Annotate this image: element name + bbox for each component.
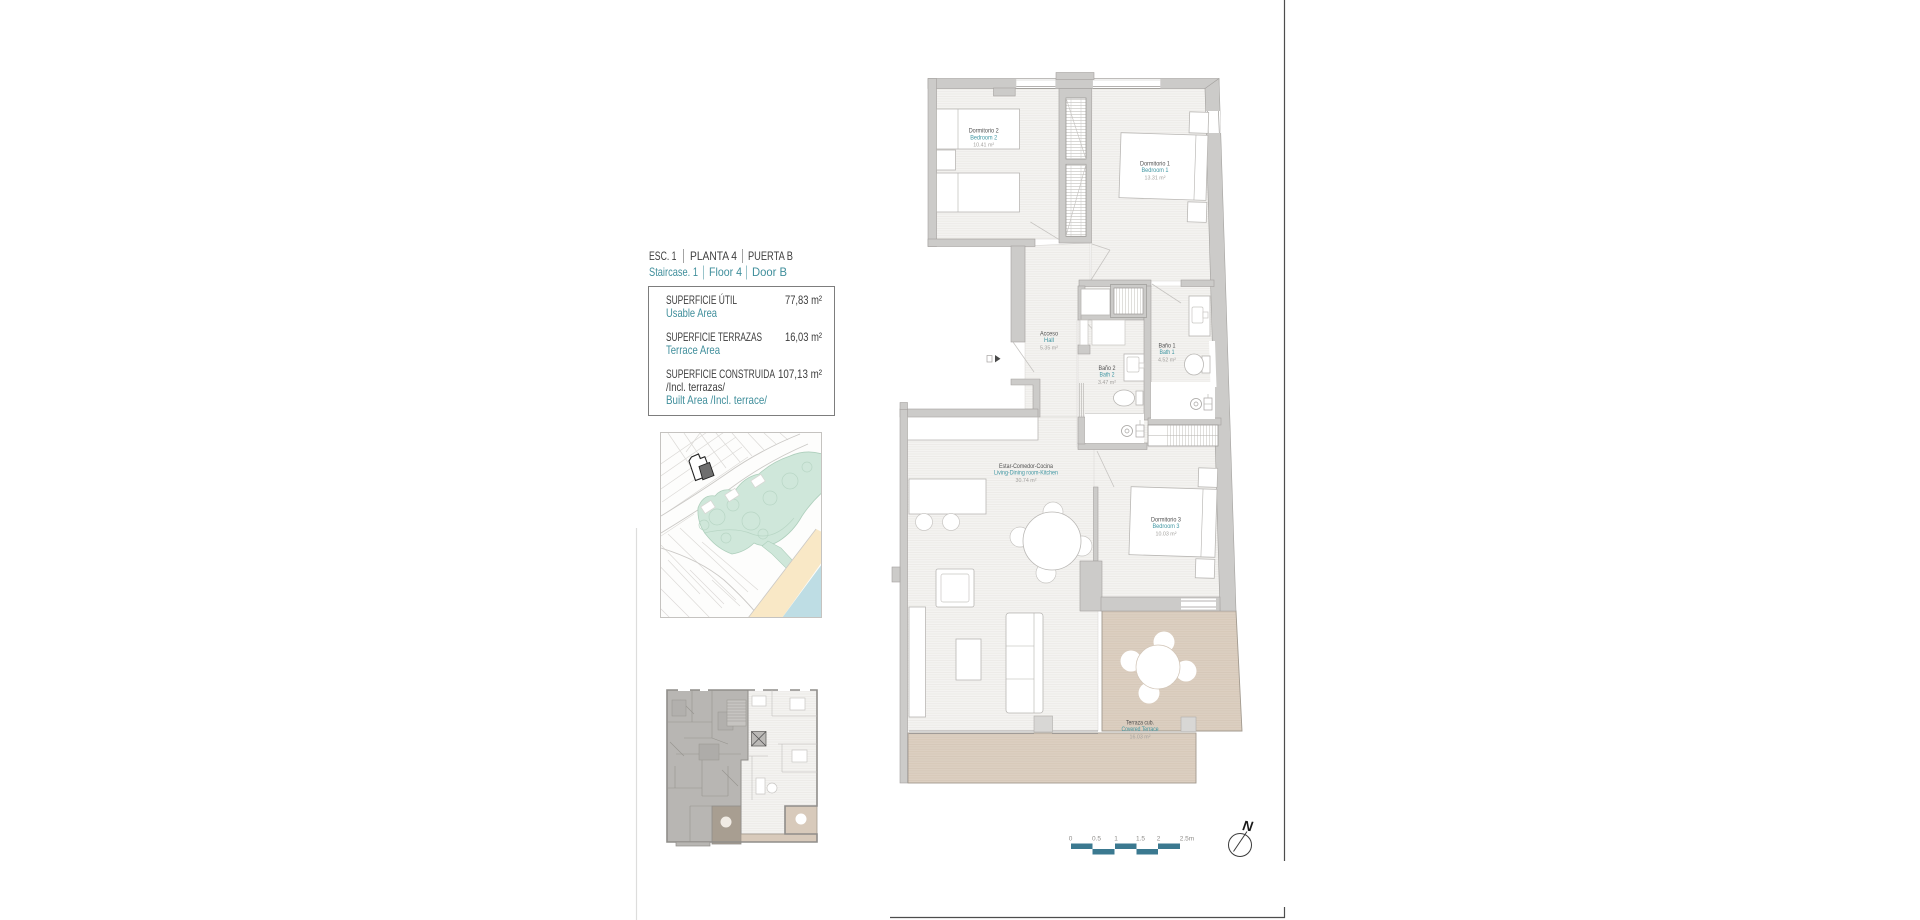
- svg-text:5.35 m²: 5.35 m²: [1040, 346, 1058, 352]
- svg-text:30.74 m²: 30.74 m²: [1016, 478, 1037, 484]
- svg-text:ESC. 1: ESC. 1: [649, 249, 677, 263]
- svg-text:16.03 m²: 16.03 m²: [1130, 735, 1151, 741]
- svg-text:1.5: 1.5: [1136, 836, 1145, 843]
- svg-text:Hall: Hall: [1044, 338, 1054, 344]
- svg-text:Living-Dining room-Kitchen: Living-Dining room-Kitchen: [994, 471, 1058, 477]
- svg-text:Dormitorio 2: Dormitorio 2: [969, 129, 1000, 135]
- svg-text:Built Area /Incl. terrace/: Built Area /Incl. terrace/: [666, 393, 768, 407]
- svg-text:3.47 m²: 3.47 m²: [1098, 380, 1116, 386]
- svg-text:0: 0: [1069, 836, 1073, 843]
- svg-text:Bedroom 1: Bedroom 1: [1142, 168, 1170, 174]
- svg-text:Bedroom 2: Bedroom 2: [970, 135, 998, 141]
- svg-text:Bath 2: Bath 2: [1100, 373, 1116, 379]
- svg-text:Estar-Comedor-Cocina: Estar-Comedor-Cocina: [999, 464, 1054, 470]
- svg-text:13.31 m²: 13.31 m²: [1145, 176, 1166, 182]
- svg-text:Floor 4: Floor 4: [709, 265, 742, 279]
- svg-text:Usable Area: Usable Area: [666, 306, 717, 320]
- svg-text:77,83 m²: 77,83 m²: [785, 293, 822, 307]
- svg-text:SUPERFICIE TERRAZAS: SUPERFICIE TERRAZAS: [666, 330, 762, 344]
- svg-text:Covered Terrace: Covered Terrace: [1122, 727, 1160, 733]
- svg-text:107,13 m²: 107,13 m²: [778, 367, 822, 381]
- svg-text:Bath 1: Bath 1: [1160, 350, 1176, 356]
- svg-text:10.41 m²: 10.41 m²: [973, 143, 994, 149]
- svg-text:Dormitorio 1: Dormitorio 1: [1140, 162, 1171, 168]
- svg-text:4.52 m²: 4.52 m²: [1158, 358, 1176, 364]
- svg-text:2.5m: 2.5m: [1180, 836, 1194, 843]
- svg-text:2: 2: [1157, 836, 1161, 843]
- svg-text:Acceso: Acceso: [1040, 332, 1059, 338]
- svg-text:0.5: 0.5: [1092, 836, 1101, 843]
- svg-text:Baño 2: Baño 2: [1099, 366, 1117, 372]
- svg-text:Baño 1: Baño 1: [1159, 344, 1177, 350]
- svg-text:Door B: Door B: [752, 265, 787, 279]
- svg-text:/Incl. terrazas/: /Incl. terrazas/: [666, 380, 726, 394]
- svg-text:PUERTA B: PUERTA B: [748, 249, 793, 263]
- svg-text:1: 1: [1114, 836, 1118, 843]
- svg-text:Dormitorio 3: Dormitorio 3: [1151, 518, 1182, 524]
- svg-text:SUPERFICIE CONSTRUIDA: SUPERFICIE CONSTRUIDA: [666, 367, 775, 381]
- svg-text:SUPERFICIE ÚTIL: SUPERFICIE ÚTIL: [666, 292, 737, 307]
- svg-text:PLANTA 4: PLANTA 4: [690, 249, 737, 263]
- svg-text:Terrace Area: Terrace Area: [666, 343, 720, 357]
- svg-text:Staircase. 1: Staircase. 1: [649, 265, 698, 279]
- svg-text:Terraza cub.: Terraza cub.: [1126, 721, 1154, 727]
- svg-text:Bedroom 3: Bedroom 3: [1153, 524, 1181, 530]
- svg-text:16,03 m²: 16,03 m²: [785, 330, 822, 344]
- svg-text:10.03 m²: 10.03 m²: [1156, 532, 1177, 538]
